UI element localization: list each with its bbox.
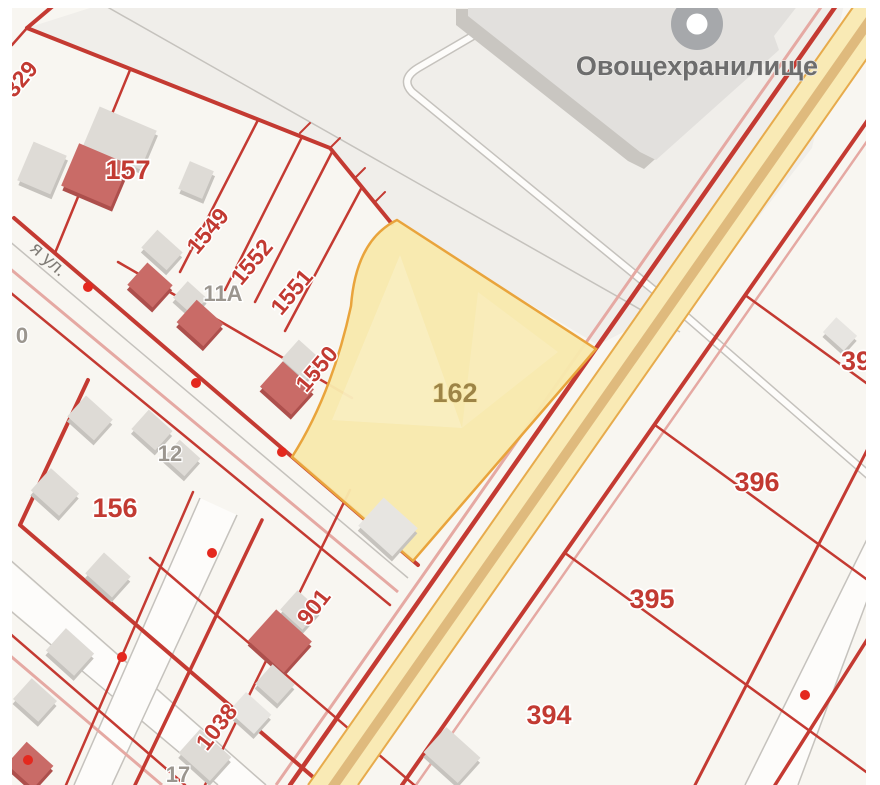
address-label-11a: 11А bbox=[203, 281, 242, 306]
parcel-label-156: 156 bbox=[92, 493, 137, 523]
parcel-label-157: 157 bbox=[105, 155, 150, 185]
parcel-label-395: 395 bbox=[629, 584, 674, 614]
address-label-17: 17 bbox=[166, 762, 190, 785]
selected-parcel-label-162: 162 bbox=[432, 378, 477, 408]
boundary-point bbox=[117, 652, 127, 662]
boundary-point bbox=[23, 755, 33, 765]
building-name-label: Овощехранилище bbox=[576, 51, 818, 81]
address-label-12: 12 bbox=[158, 441, 182, 466]
boundary-point bbox=[800, 690, 810, 700]
boundary-point bbox=[83, 282, 93, 292]
parcel-label-396: 396 bbox=[734, 467, 779, 497]
boundary-point bbox=[191, 378, 201, 388]
cadastral-map-canvas[interactable]: 329157154915521551155011А120156я ул.162О… bbox=[0, 0, 880, 785]
parcel-label-394: 394 bbox=[526, 700, 571, 730]
frame-right bbox=[866, 0, 880, 785]
address-label-0: 0 bbox=[16, 323, 28, 348]
map-viewport[interactable]: 329157154915521551155011А120156я ул.162О… bbox=[0, 0, 880, 785]
frame-top bbox=[0, 0, 880, 8]
boundary-point bbox=[207, 548, 217, 558]
boundary-point bbox=[277, 447, 287, 457]
frame-left bbox=[0, 0, 12, 785]
